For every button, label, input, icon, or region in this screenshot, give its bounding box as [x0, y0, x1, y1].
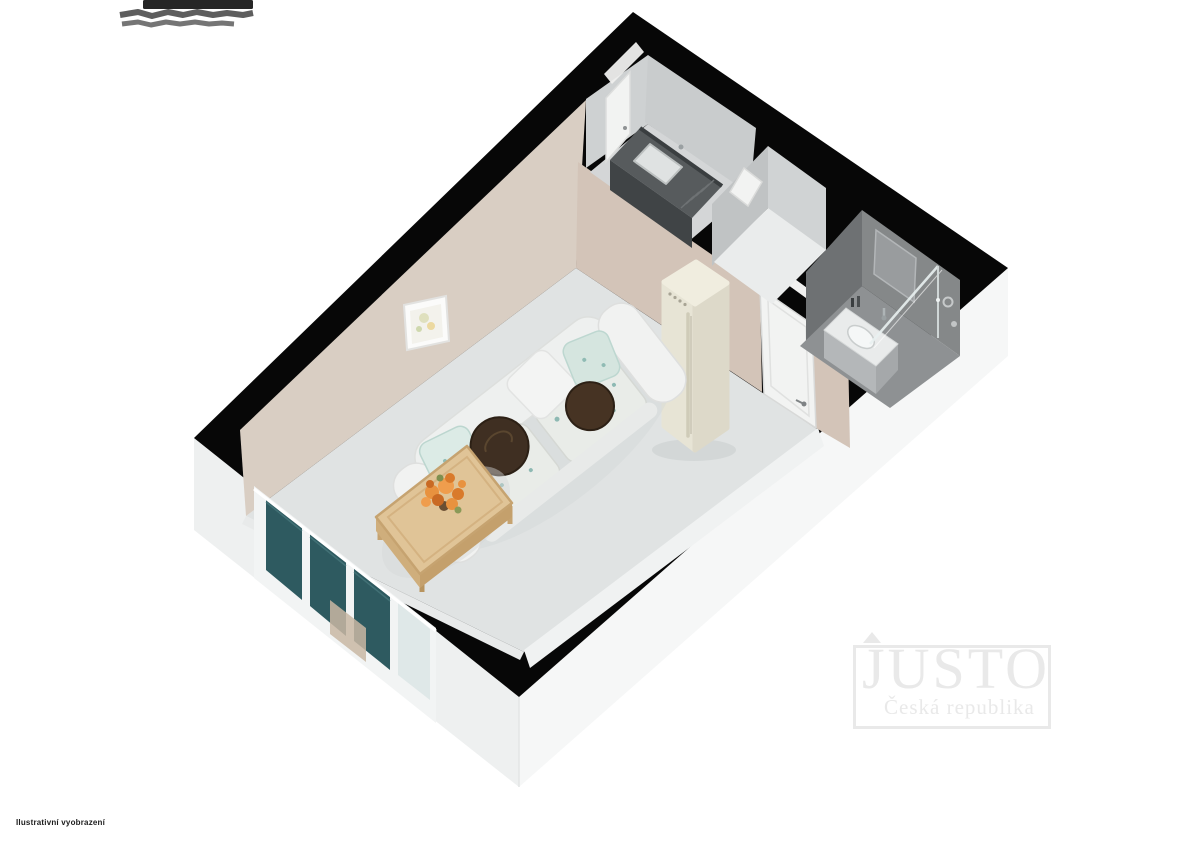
wall-picture	[404, 296, 449, 350]
redacted-address-block	[110, 0, 280, 32]
justo-watermark: JUSTO Česká republika	[853, 645, 1051, 729]
redaction-scribble-line	[122, 22, 234, 25]
disclaimer-text: Ilustrativní vyobrazení	[16, 818, 105, 827]
floorplan-page: { "canvas": {"width": 1200, "height": 84…	[0, 0, 1200, 849]
redaction-scribble-line	[120, 12, 253, 16]
faucet	[679, 145, 684, 150]
door-handle	[623, 126, 627, 130]
redaction-bar	[143, 0, 253, 9]
watermark-title: JUSTO	[862, 640, 1050, 698]
watermark-subtitle: Česká republika	[884, 695, 1035, 720]
